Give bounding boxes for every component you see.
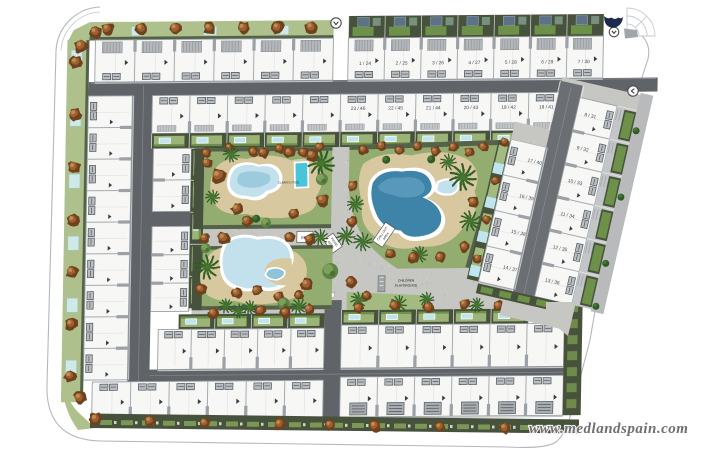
svg-text:18 / 41: 18 / 41	[539, 104, 554, 110]
svg-text:23 / 46: 23 / 46	[351, 106, 366, 112]
svg-text:22 / 45: 22 / 45	[388, 106, 403, 112]
svg-text:2 / 25: 2 / 25	[396, 61, 408, 67]
svg-text:1 / 24: 1 / 24	[359, 61, 371, 67]
svg-text:4 / 27: 4 / 27	[468, 60, 480, 66]
svg-text:21 / 44: 21 / 44	[426, 105, 441, 111]
svg-text:CLIMATE POOL: CLIMATE POOL	[278, 180, 300, 184]
svg-text:7 / 30: 7 / 30	[578, 59, 590, 65]
svg-text:3 / 26: 3 / 26	[432, 60, 444, 66]
svg-text:6 / 29: 6 / 29	[541, 59, 553, 65]
svg-text:20 / 43: 20 / 43	[464, 105, 479, 111]
svg-text:www.medlandspain.com: www.medlandspain.com	[529, 421, 688, 437]
svg-text:19 / 42: 19 / 42	[501, 105, 516, 111]
svg-text:PLAYGROUND: PLAYGROUND	[395, 283, 418, 287]
svg-text:5 / 28: 5 / 28	[505, 60, 517, 66]
svg-text:CHILDREN: CHILDREN	[398, 278, 415, 282]
